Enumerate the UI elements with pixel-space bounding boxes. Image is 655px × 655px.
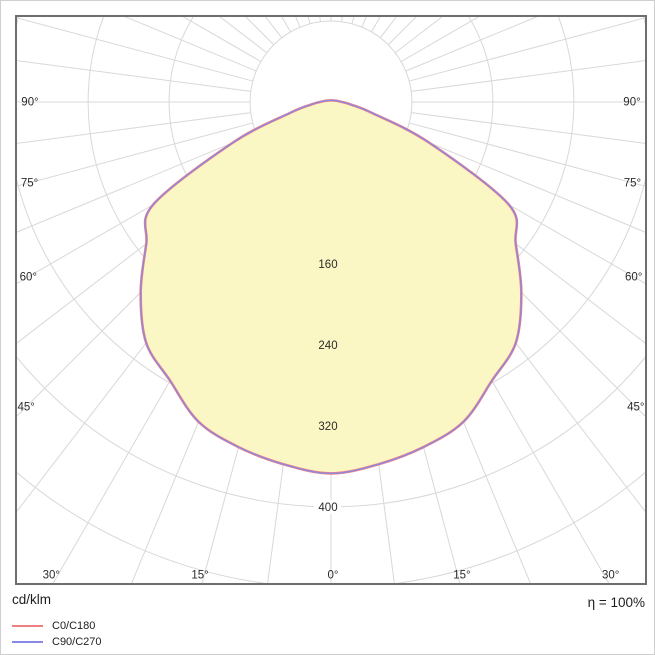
efficiency-label: η = 100% bbox=[588, 595, 645, 610]
angle-label: 45° bbox=[18, 401, 35, 413]
angle-label: 30° bbox=[43, 570, 60, 582]
angle-label: 60° bbox=[625, 271, 642, 283]
ring-value-label: 320 bbox=[318, 421, 337, 433]
angle-label: 30° bbox=[602, 570, 619, 582]
angle-label: 60° bbox=[20, 271, 37, 283]
angle-label: 0° bbox=[328, 570, 339, 582]
angle-label: 45° bbox=[627, 401, 644, 413]
legend-item-c90: C90/C270 bbox=[12, 634, 102, 650]
angle-label: 90° bbox=[623, 97, 640, 109]
angle-label: 75° bbox=[624, 177, 641, 189]
polar-plot: 1602403204000°15°15°30°30°45°45°60°60°75… bbox=[1, 1, 654, 654]
ring-value-label: 160 bbox=[318, 259, 337, 271]
legend-label-c90: C90/C270 bbox=[52, 636, 102, 648]
angle-label: 15° bbox=[191, 570, 208, 582]
unit-label: cd/klm bbox=[12, 592, 51, 607]
angle-label: 15° bbox=[453, 570, 470, 582]
c0-c180-line-swatch bbox=[12, 625, 43, 627]
photometric-diagram-window: 1602403204000°15°15°30°30°45°45°60°60°75… bbox=[0, 0, 655, 655]
angle-label: 90° bbox=[21, 97, 38, 109]
legend-label-c0: C0/C180 bbox=[52, 620, 95, 632]
ring-value-label: 240 bbox=[318, 340, 337, 352]
c90-c270-line-swatch bbox=[12, 641, 43, 643]
legend-item-c0: C0/C180 bbox=[12, 618, 102, 634]
ring-value-label: 400 bbox=[318, 502, 337, 514]
legend: C0/C180 C90/C270 bbox=[12, 618, 102, 650]
angle-label: 75° bbox=[21, 177, 38, 189]
